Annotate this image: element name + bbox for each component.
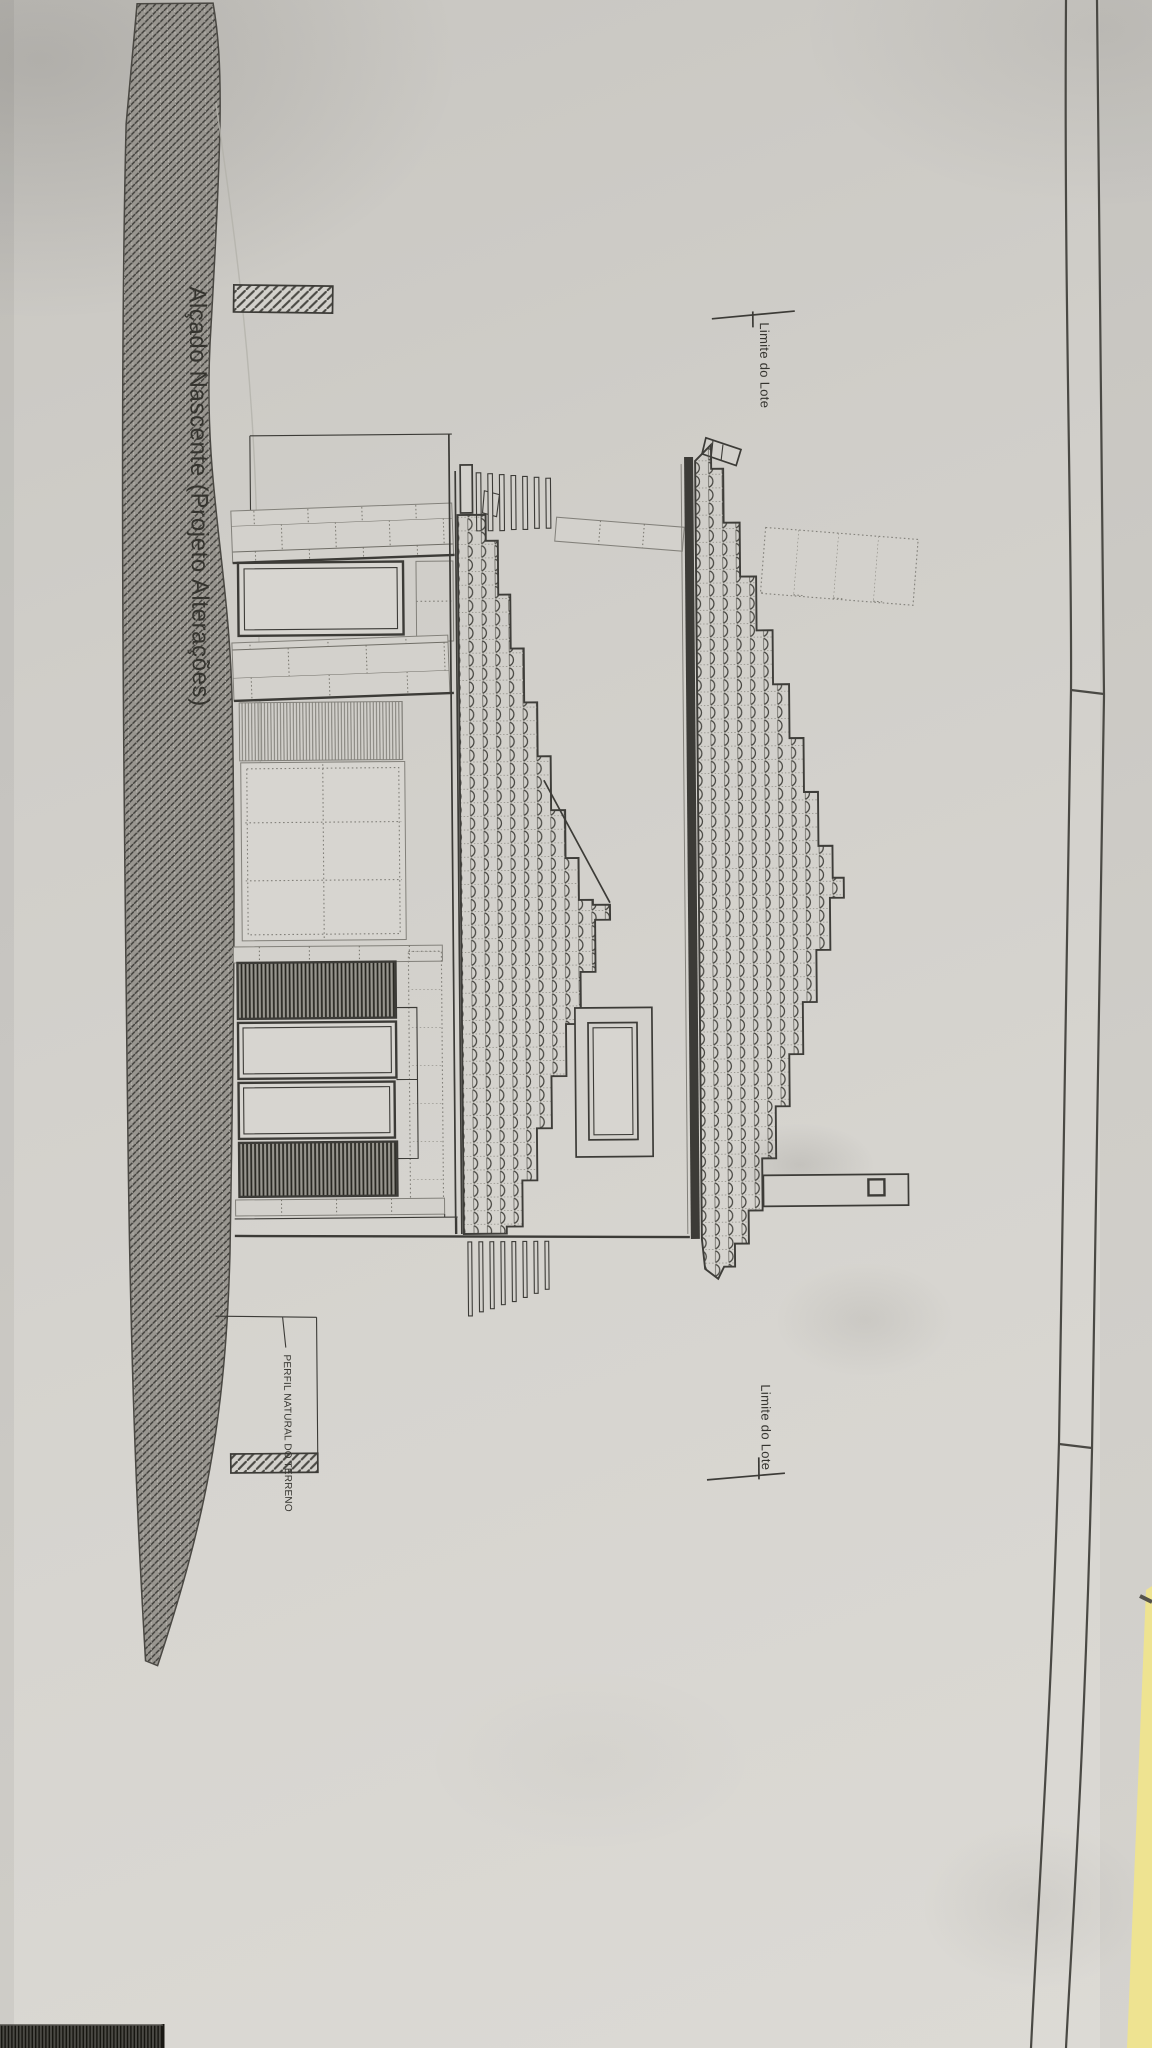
glass-panel-2 [239,1082,395,1139]
boundary-post-section [763,1174,908,1206]
lot-limit-label-lower: Limite do Lote [758,1384,774,1470]
terrain-profile-callout: PERFIL NATURAL DO TERRENO [216,1315,319,1512]
chimney-stone-band [760,527,918,605]
dark-underlay-band [0,2024,164,2048]
sheet-edge-lines [1031,0,1104,2048]
glass-panel-1 [238,1022,396,1079]
lower-bay [232,945,458,1236]
upper-opening [238,561,454,643]
upper-window-assembly [239,701,406,940]
eave-and-rafters [235,1232,691,1318]
gable-window [575,1007,653,1157]
lot-limit-label-upper: Limite do Lote [757,322,773,408]
terrain-profile-label: PERFIL NATURAL DO TERRENO [281,1354,293,1511]
stone-band-2 [232,635,454,701]
lot-limit-marker-upper: Limite do Lote [712,311,796,409]
photo-of-elevation-sheet: Alçado Nascente (Projeto Alterações) Lim… [0,0,1152,2048]
gap-coping-band [555,517,684,551]
lot-limit-marker-lower: Limite do Lote [706,1384,785,1480]
shutter-louver-2 [239,1142,397,1197]
boundary-wall-section-upper [234,285,333,313]
stone-band-1 [231,503,455,563]
sheet-title: Alçado Nascente (Projeto Alterações) [184,286,215,707]
shutter-louver-1 [237,962,395,1019]
